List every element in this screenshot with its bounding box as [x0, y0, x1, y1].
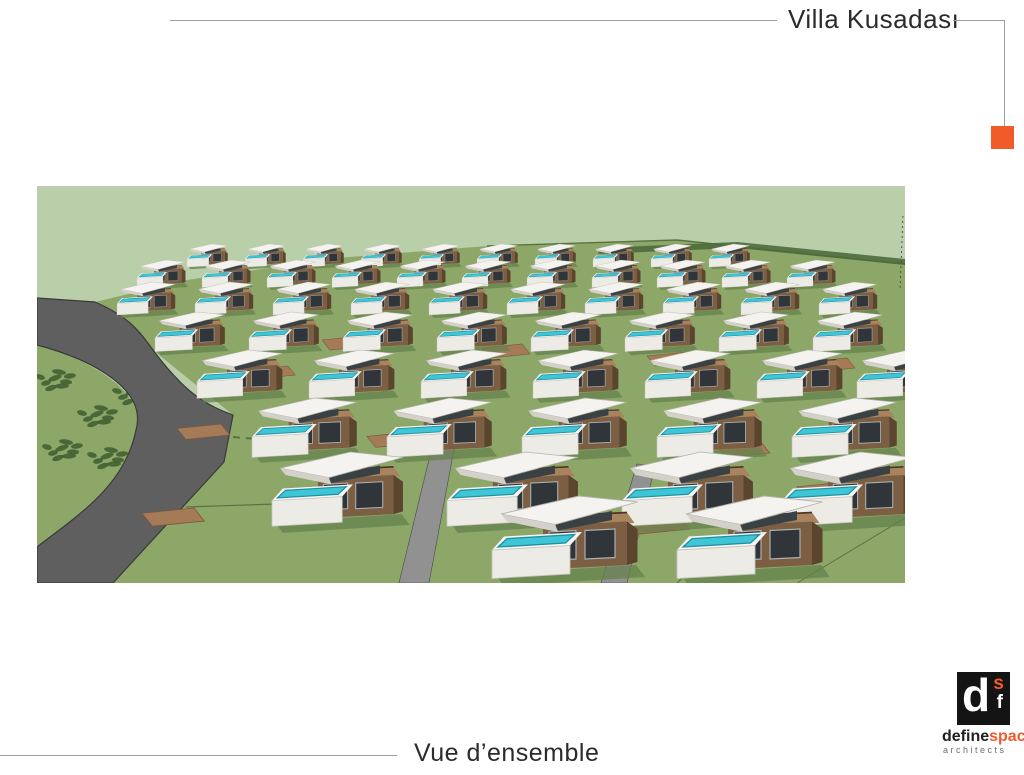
- logo-word-define: define: [942, 728, 989, 745]
- title-rule-drop: [1004, 20, 1005, 126]
- site-rendering-svg: [37, 186, 905, 583]
- logo-word-space: space: [989, 728, 1024, 745]
- logo-letter-d: d: [962, 668, 990, 722]
- logo-subtitle: architects: [943, 745, 1024, 755]
- logo-letter-f: f: [997, 692, 1003, 714]
- title-rule-left: [170, 20, 777, 21]
- page-title: Villa Kusadası: [788, 4, 959, 34]
- site-rendering: [37, 186, 905, 583]
- caption-rule: [0, 755, 397, 756]
- logo-wordmark: definespace: [942, 728, 1024, 746]
- accent-square: [991, 126, 1014, 149]
- slide-canvas: Villa Kusadası: [0, 0, 1024, 775]
- slide-caption: Vue d’ensemble: [414, 739, 599, 768]
- title-rule-right: [953, 20, 1005, 21]
- logo-mark: d s f: [957, 672, 1010, 725]
